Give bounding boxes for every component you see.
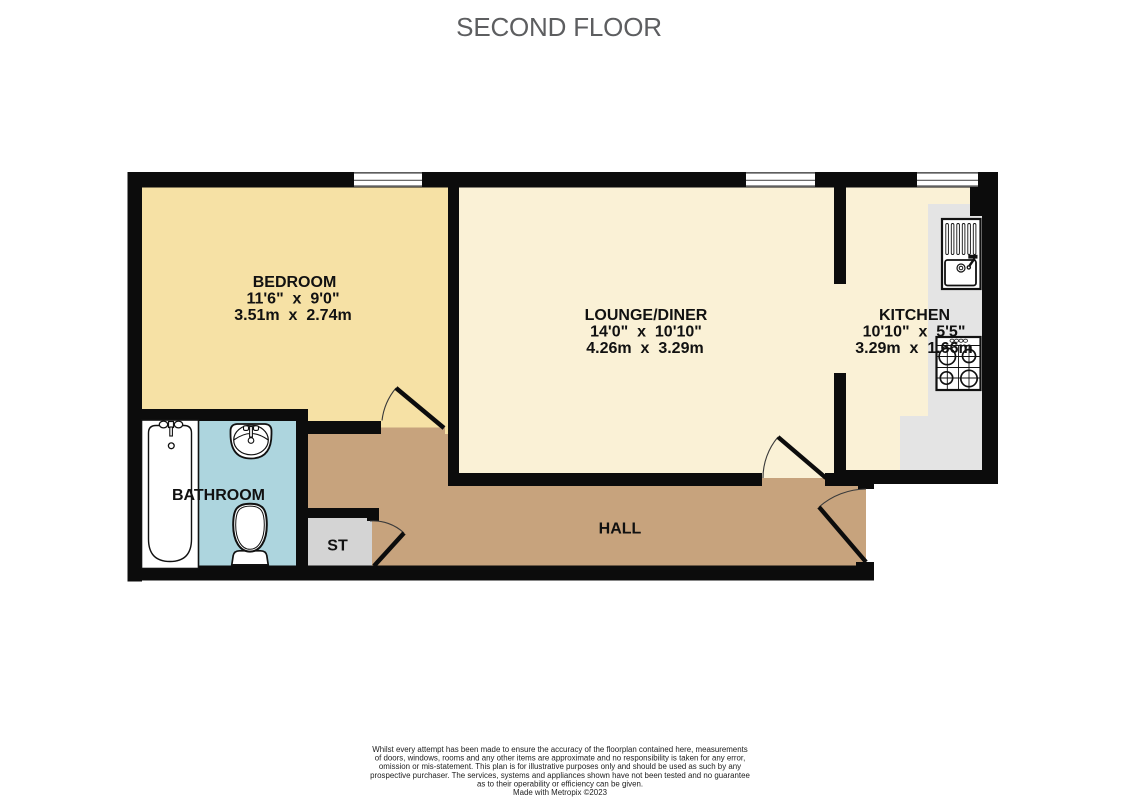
svg-text:10'10" x 5'5": 10'10" x 5'5" — [863, 323, 966, 340]
svg-text:11'6" x 9'0": 11'6" x 9'0" — [246, 290, 339, 307]
svg-text:Made with Metropix ©2023: Made with Metropix ©2023 — [513, 788, 608, 797]
svg-text:3.29m x 1.66m: 3.29m x 1.66m — [855, 340, 972, 357]
svg-text:HALL: HALL — [599, 520, 642, 537]
svg-text:3.51m x 2.74m: 3.51m x 2.74m — [234, 307, 351, 324]
svg-text:SECOND FLOOR: SECOND FLOOR — [456, 12, 662, 42]
svg-text:KITCHEN: KITCHEN — [879, 307, 950, 324]
svg-text:LOUNGE/DINER: LOUNGE/DINER — [585, 307, 708, 324]
svg-text:BEDROOM: BEDROOM — [253, 274, 337, 291]
svg-text:4.26m x 3.29m: 4.26m x 3.29m — [586, 340, 703, 357]
svg-text:ST: ST — [327, 538, 348, 555]
svg-text:14'0" x 10'10": 14'0" x 10'10" — [590, 323, 702, 340]
svg-text:BATHROOM: BATHROOM — [172, 487, 265, 504]
